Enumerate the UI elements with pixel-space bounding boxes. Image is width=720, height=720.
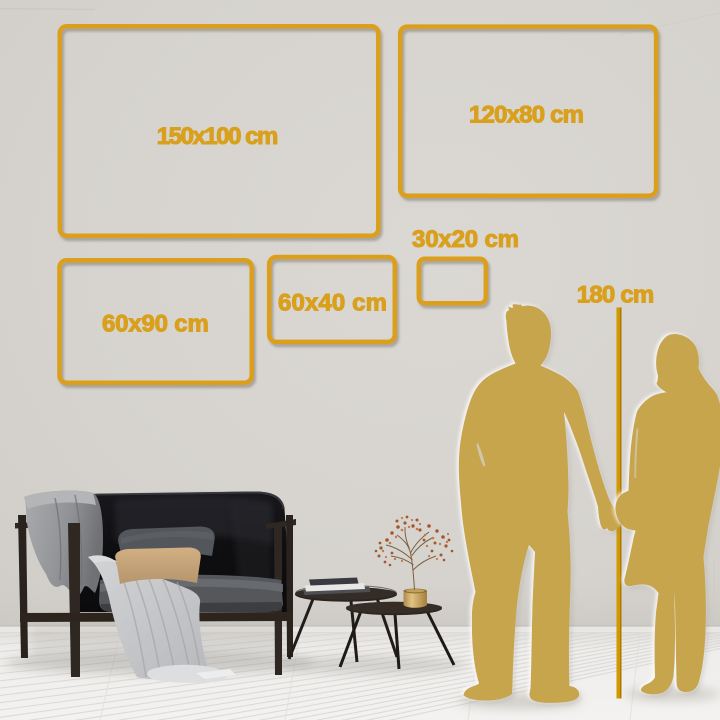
svg-text:60x40 cm: 60x40 cm bbox=[278, 290, 387, 317]
svg-text:150x100 cm: 150x100 cm bbox=[157, 123, 279, 150]
svg-text:120x80 cm: 120x80 cm bbox=[469, 102, 584, 129]
svg-text:180 cm: 180 cm bbox=[577, 282, 655, 309]
svg-text:60x90 cm: 60x90 cm bbox=[102, 310, 209, 337]
svg-text:30x20 cm: 30x20 cm bbox=[412, 226, 519, 253]
